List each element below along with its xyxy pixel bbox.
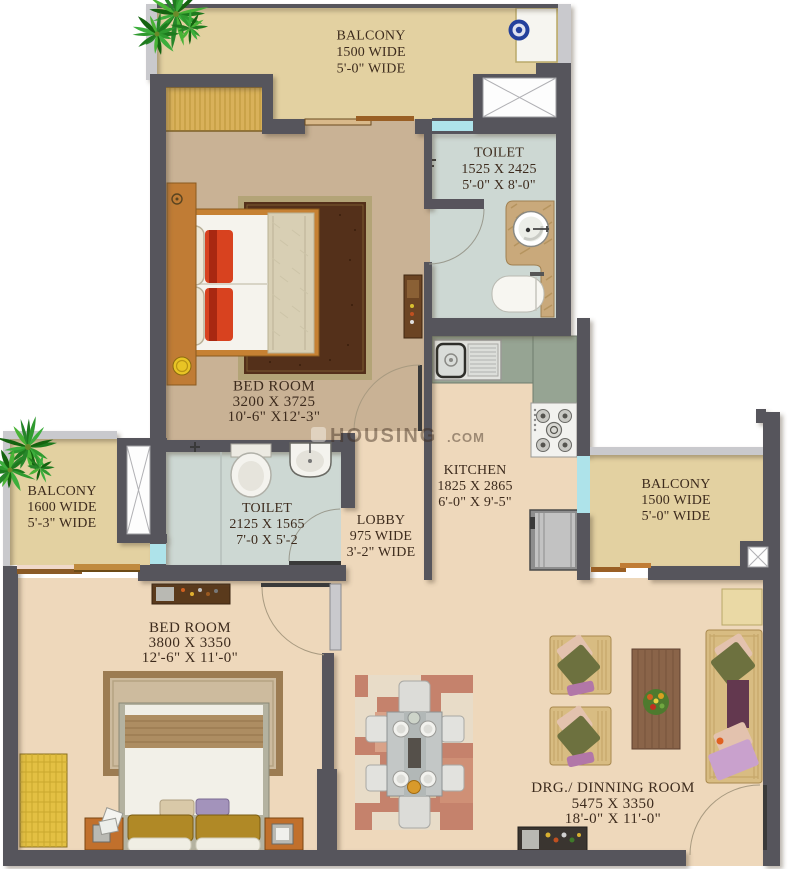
svg-text:3200 X 3725: 3200 X 3725	[233, 394, 316, 410]
svg-text:TOILET: TOILET	[242, 501, 292, 516]
svg-text:6'-0" X 9'-5": 6'-0" X 9'-5"	[438, 495, 512, 510]
svg-text:3800 X 3350: 3800 X 3350	[149, 635, 232, 651]
svg-text:5475 X 3350: 5475 X 3350	[572, 796, 655, 812]
svg-text:BALCONY: BALCONY	[336, 29, 405, 44]
svg-text:3'-2" WIDE: 3'-2" WIDE	[347, 545, 416, 560]
svg-text:BED ROOM: BED ROOM	[233, 379, 315, 395]
svg-text:5'-0" WIDE: 5'-0" WIDE	[337, 61, 406, 76]
svg-text:10'-6" X12'-3": 10'-6" X12'-3"	[228, 409, 321, 425]
svg-text:12'-6" X 11'-0": 12'-6" X 11'-0"	[142, 650, 238, 666]
svg-text:BALCONY: BALCONY	[27, 484, 96, 499]
svg-text:DRG./ DINNING ROOM: DRG./ DINNING ROOM	[531, 780, 694, 796]
svg-text:TOILET: TOILET	[474, 146, 524, 161]
svg-text:.COM: .COM	[447, 430, 485, 445]
svg-text:HOUSING: HOUSING	[330, 425, 437, 447]
svg-text:5'-3" WIDE: 5'-3" WIDE	[28, 516, 97, 531]
svg-text:5'-0" X 8'-0": 5'-0" X 8'-0"	[462, 178, 536, 193]
svg-text:1500 WIDE: 1500 WIDE	[641, 493, 711, 508]
svg-text:5'-0" WIDE: 5'-0" WIDE	[642, 509, 711, 524]
svg-text:7'-0 X 5'-2: 7'-0 X 5'-2	[236, 533, 298, 548]
svg-text:BED ROOM: BED ROOM	[149, 620, 231, 636]
svg-text:BALCONY: BALCONY	[641, 477, 710, 492]
svg-text:1600 WIDE: 1600 WIDE	[27, 500, 97, 515]
svg-text:KITCHEN: KITCHEN	[444, 463, 507, 478]
svg-text:LOBBY: LOBBY	[357, 513, 405, 528]
svg-text:1825 X 2865: 1825 X 2865	[437, 479, 512, 494]
svg-text:1525 X 2425: 1525 X 2425	[461, 162, 536, 177]
svg-text:975 WIDE: 975 WIDE	[350, 529, 412, 544]
svg-text:1500 WIDE: 1500 WIDE	[336, 45, 406, 60]
svg-text:2125 X 1565: 2125 X 1565	[229, 517, 304, 532]
svg-text:18'-0" X 11'-0": 18'-0" X 11'-0"	[565, 811, 661, 827]
